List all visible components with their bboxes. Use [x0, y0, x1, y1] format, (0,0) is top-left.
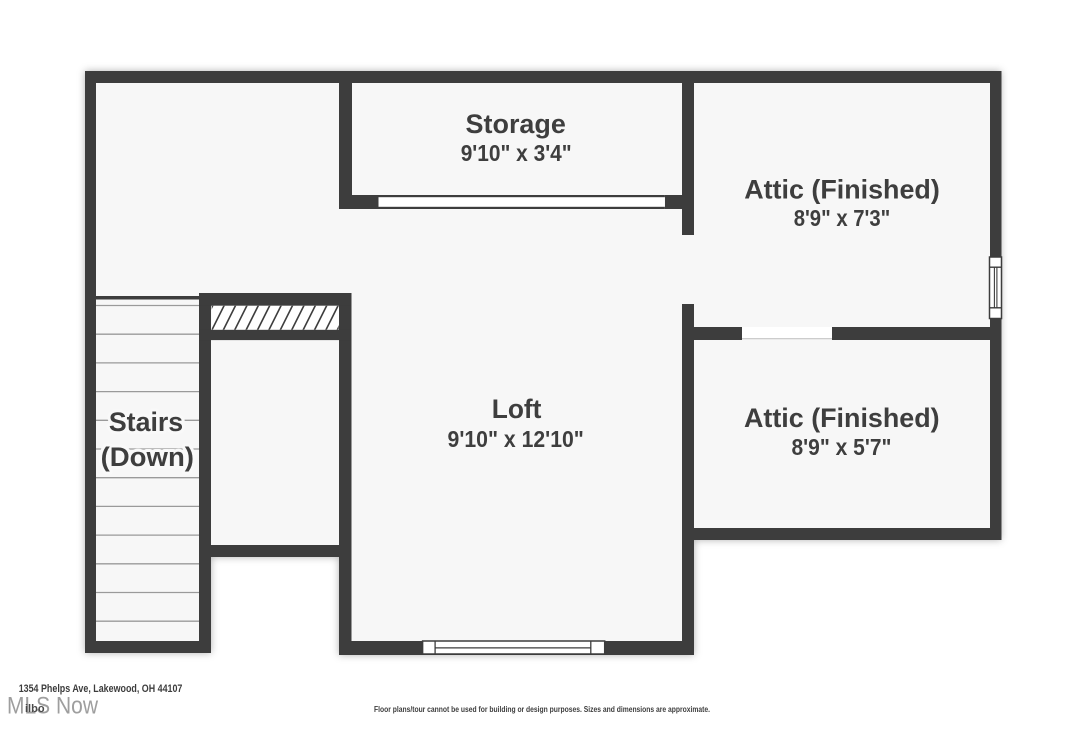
svg-text:8'9" x 7'3": 8'9" x 7'3" — [794, 205, 891, 231]
svg-text:Floor plans/tour cannot be use: Floor plans/tour cannot be used for buil… — [374, 705, 710, 714]
svg-text:Stairs: Stairs — [109, 407, 183, 437]
svg-text:Attic (Finished): Attic (Finished) — [744, 403, 940, 433]
svg-text:Attic (Finished): Attic (Finished) — [744, 175, 940, 205]
svg-text:9'10" x 3'4": 9'10" x 3'4" — [461, 140, 572, 166]
svg-text:ilbo: ilbo — [25, 703, 45, 715]
svg-text:8'9" x 5'7": 8'9" x 5'7" — [792, 434, 892, 460]
svg-text:9'10" x 12'10": 9'10" x 12'10" — [448, 426, 584, 452]
svg-text:Loft: Loft — [492, 394, 542, 424]
svg-text:MLS Now: MLS Now — [7, 693, 99, 720]
svg-text:(Down): (Down) — [101, 442, 194, 472]
svg-text:Storage: Storage — [466, 109, 566, 139]
